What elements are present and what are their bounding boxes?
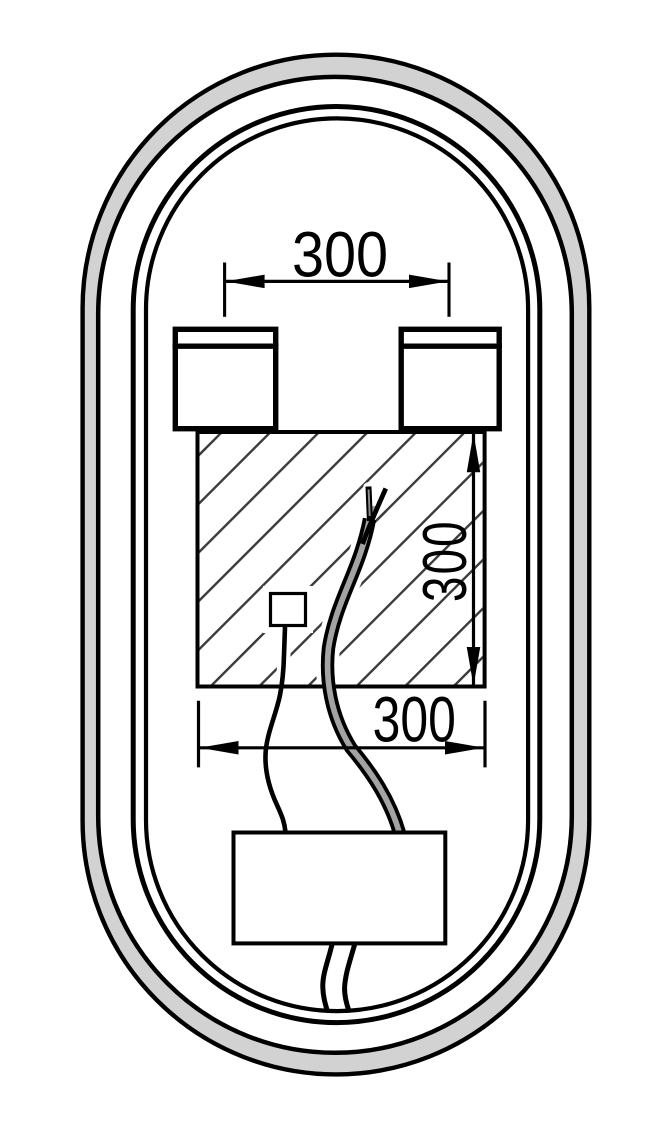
svg-text:300: 300: [292, 218, 388, 289]
svg-text:300: 300: [409, 519, 480, 602]
svg-text:300: 300: [373, 685, 456, 756]
